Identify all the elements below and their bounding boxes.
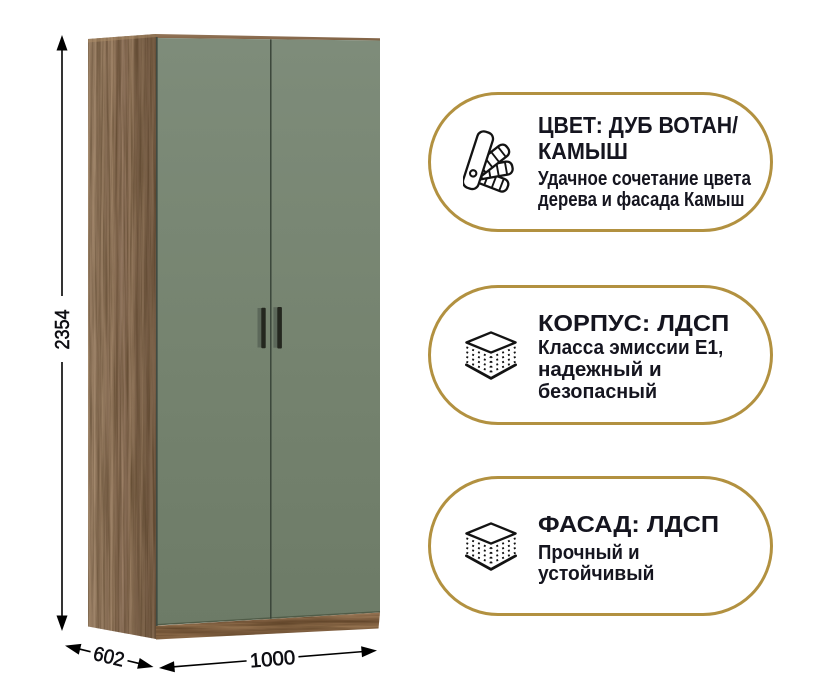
svg-text:602: 602	[91, 643, 126, 672]
svg-text:1000: 1000	[249, 647, 296, 673]
svg-text:2354: 2354	[52, 310, 74, 350]
